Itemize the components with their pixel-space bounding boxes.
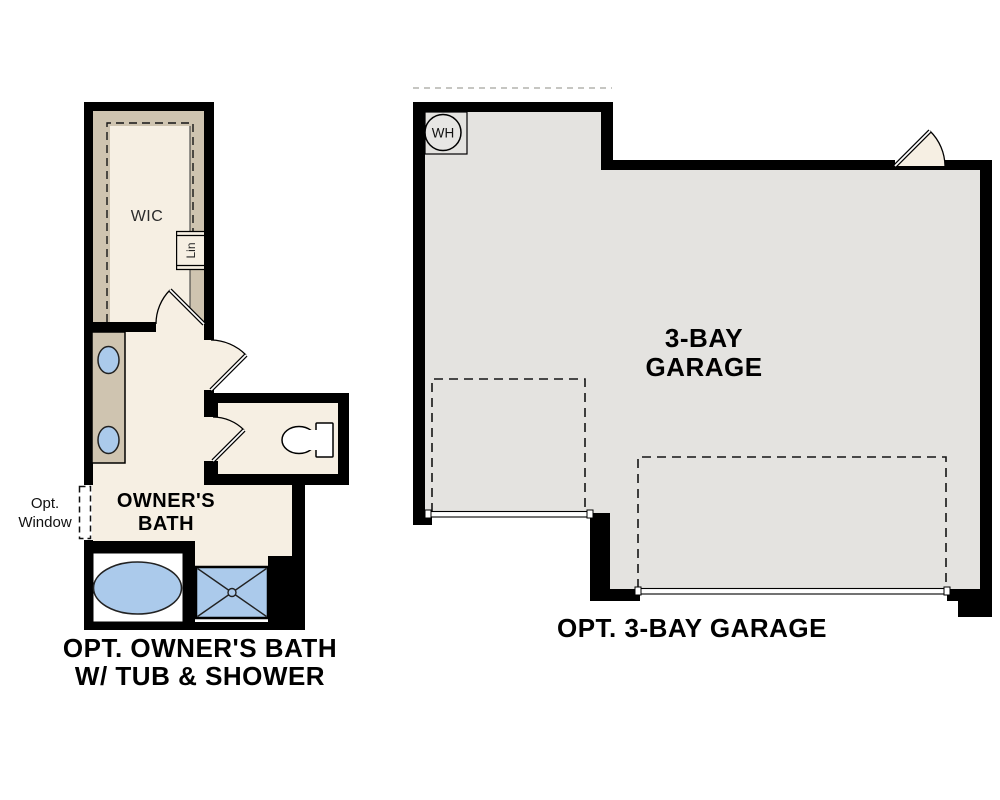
floor-plan-canvas: WIC Lin Opt. Window OWNER'S BATH OPT. OW… [0,0,1000,800]
garage-plan: WH 3-BAY GARAGE OPT. 3-BAY GARAGE [413,88,992,643]
wall [980,160,992,601]
wall [413,102,613,112]
single-garage-door [425,510,593,518]
garage-door-panel [428,512,590,518]
water-heater: WH [425,112,467,154]
bath-caption-line1: OPT. OWNER'S BATH [63,633,337,663]
garage-caption: OPT. 3-BAY GARAGE [557,613,827,643]
water-heater-label: WH [432,126,455,141]
toilet-neck [308,430,318,450]
wall [413,102,425,525]
vanity [92,332,125,463]
wall [84,541,195,553]
bath-entry-door [211,340,246,390]
wall [947,589,992,601]
bath-floor-lower [204,485,292,557]
garage-door-jamb [944,587,950,595]
garage-label-line2: GARAGE [645,352,762,382]
wall [292,474,305,630]
floor-plan-page: WIC Lin Opt. Window OWNER'S BATH OPT. OW… [0,0,1000,800]
opt-window-label-line2: Window [18,514,72,531]
wall [268,556,292,630]
toilet-tank [316,423,333,457]
wall [84,322,156,332]
owners-bath-label-line2: BATH [138,513,194,535]
garage-door-jamb [635,587,641,595]
wall [590,513,610,601]
door-threshold [895,166,945,170]
bath-caption-line2: W/ TUB & SHOWER [75,661,325,691]
double-garage-door [635,587,950,595]
vanity-sink [98,427,119,454]
garage-door-panel [638,589,947,595]
tub-basin [94,562,182,614]
owners-bath-label-line1: OWNER'S [117,490,215,512]
wall [183,553,195,622]
garage-label-line1: 3-BAY [665,323,743,353]
garage-door-jamb [425,510,431,518]
wic-label: WIC [131,208,164,225]
vanity-sink [98,347,119,374]
opt-window-label-line1: Opt. [31,495,59,512]
bathtub [93,553,183,622]
bath-plan: WIC Lin Opt. Window OWNER'S BATH OPT. OW… [18,102,349,691]
wall-pillar [958,601,992,617]
garage-door-jamb [587,510,593,518]
linen-label: Lin [184,242,198,258]
shower-drain [228,589,236,597]
garage-entry-door [895,131,945,166]
opt-window [78,485,92,540]
wall [601,160,895,170]
wall [84,540,93,630]
wall [601,102,613,170]
shower [196,567,268,618]
wall [204,102,214,340]
